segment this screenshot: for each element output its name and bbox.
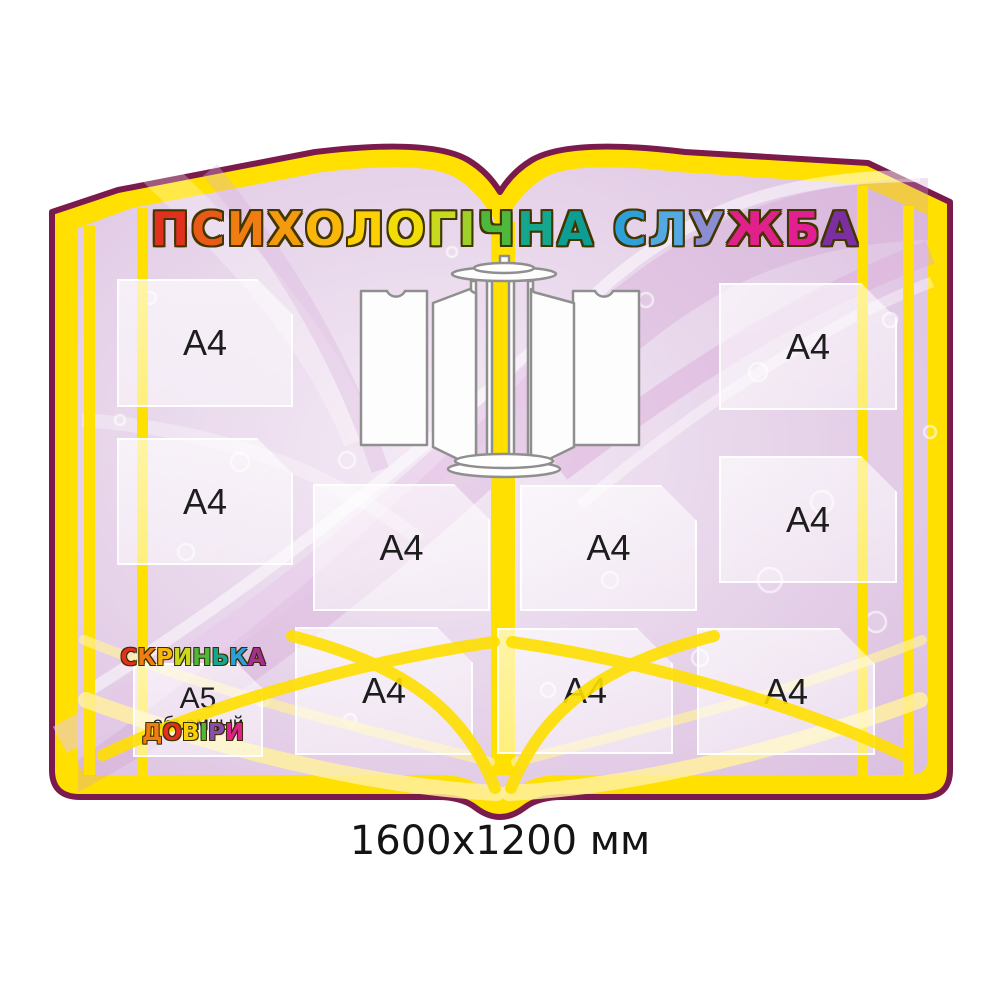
trust-box-label: СКРИНЬКА ДОВІРИ: [108, 595, 278, 797]
rainbow-letter: І: [199, 720, 208, 746]
rainbow-letter: Г: [427, 202, 458, 256]
pocket-label: A4: [563, 673, 607, 709]
pocket-a4-bottom-left: A4: [295, 627, 473, 755]
rainbow-letter: К: [229, 645, 248, 671]
pocket-label: A4: [379, 530, 423, 566]
rainbow-letter: А: [822, 202, 860, 256]
rainbow-letter: Н: [192, 645, 211, 671]
trust-box-line1: СКРИНЬКА: [108, 646, 278, 671]
pocket-a4-bottom-center: A4: [497, 628, 673, 754]
rainbow-letter: І: [459, 202, 478, 256]
pocket-label: A4: [764, 674, 808, 710]
rainbow-letter: [595, 202, 613, 256]
pocket-label: A4: [183, 325, 227, 361]
rainbow-letter: Л: [649, 202, 689, 256]
rainbow-letter: Ж: [726, 202, 784, 256]
pocket-a4-right-middle: A4: [719, 456, 897, 583]
pocket-a4-bottom-right: A4: [697, 628, 875, 755]
rainbow-letter: С: [120, 645, 137, 671]
dimensions-caption: 1600x1200 мм: [0, 818, 1000, 864]
rainbow-letter: В: [182, 720, 200, 746]
rainbow-letter: О: [386, 202, 427, 256]
pocket-a4-center-left: A4: [313, 484, 490, 611]
pocket-a4-left-middle: A4: [117, 438, 293, 565]
rainbow-letter: О: [305, 202, 346, 256]
pocket-label: A4: [586, 530, 630, 566]
rainbow-letter: И: [227, 202, 268, 256]
rainbow-letter: А: [557, 202, 595, 256]
trust-box-line2: ДОВІРИ: [108, 721, 278, 746]
rainbow-letter: С: [191, 202, 227, 256]
rainbow-letter: И: [173, 645, 192, 671]
product-image: A4 A4 A4 A4 A4 A4 A4 A4 A4 A5 объемный П…: [0, 0, 1000, 1000]
pocket-a4-right-top: A4: [719, 283, 897, 410]
rainbow-letter: Р: [208, 720, 225, 746]
rainbow-letter: Х: [267, 202, 304, 256]
rainbow-letter: Б: [785, 202, 822, 256]
rainbow-letter: Ь: [211, 645, 229, 671]
pocket-label: A4: [786, 502, 830, 538]
rainbow-letter: К: [137, 645, 156, 671]
rainbow-letter: Н: [517, 202, 558, 256]
pocket-label: A4: [786, 329, 830, 365]
board-title: ПСИХОЛОГІЧНА СЛУЖБА: [60, 202, 950, 256]
rainbow-letter: С: [613, 202, 649, 256]
rainbow-letter: У: [689, 202, 726, 256]
rainbow-letter: Р: [156, 645, 173, 671]
rainbow-letter: И: [225, 720, 244, 746]
rainbow-letter: П: [151, 202, 192, 256]
rainbow-letter: Л: [346, 202, 386, 256]
rainbow-letter: Ч: [478, 202, 517, 256]
pocket-a4-center-right: A4: [520, 485, 697, 611]
rainbow-letter: Д: [142, 720, 162, 746]
pocket-label: A4: [362, 673, 406, 709]
rainbow-letter: А: [248, 645, 266, 671]
pocket-label: A4: [183, 484, 227, 520]
pocket-a4-left-top: A4: [117, 279, 293, 407]
rainbow-letter: О: [162, 720, 182, 746]
